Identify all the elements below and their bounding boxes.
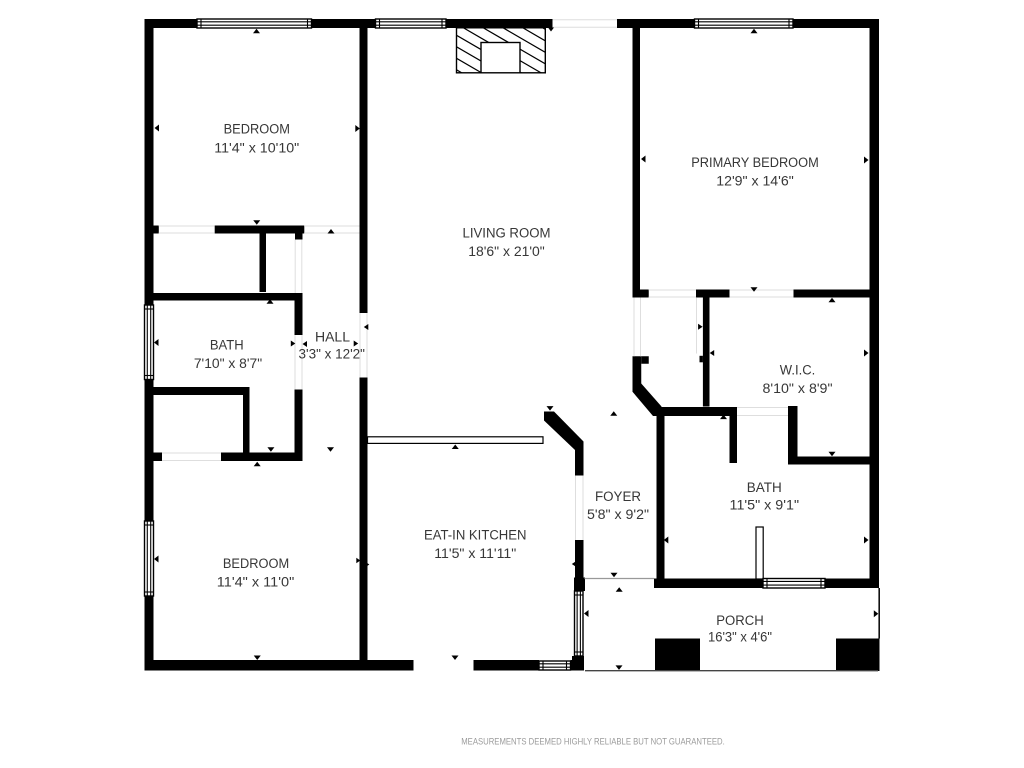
- svg-text:3'3" x 12'2": 3'3" x 12'2": [299, 347, 366, 362]
- svg-text:W.I.C.: W.I.C.: [780, 363, 816, 378]
- svg-text:5'8" x 9'2": 5'8" x 9'2": [587, 507, 649, 522]
- svg-text:HALL: HALL: [315, 329, 350, 344]
- svg-text:PRIMARY BEDROOM: PRIMARY BEDROOM: [691, 155, 819, 170]
- svg-text:12'9" x 14'6": 12'9" x 14'6": [716, 174, 794, 189]
- svg-text:11'4" x 10'10": 11'4" x 10'10": [214, 141, 299, 156]
- svg-text:BATH: BATH: [210, 337, 244, 352]
- svg-text:PORCH: PORCH: [716, 613, 764, 628]
- svg-text:BEDROOM: BEDROOM: [223, 556, 289, 571]
- svg-text:18'6" x 21'0": 18'6" x 21'0": [468, 244, 545, 259]
- svg-text:8'10" x 8'9": 8'10" x 8'9": [763, 381, 833, 396]
- svg-text:EAT-IN KITCHEN: EAT-IN KITCHEN: [424, 527, 527, 542]
- svg-text:LIVING ROOM: LIVING ROOM: [463, 225, 551, 240]
- svg-text:MEASUREMENTS DEEMED HIGHLY REL: MEASUREMENTS DEEMED HIGHLY RELIABLE BUT …: [461, 737, 725, 747]
- svg-text:BEDROOM: BEDROOM: [224, 122, 290, 137]
- svg-text:FOYER: FOYER: [595, 489, 641, 504]
- svg-text:11'5" x 9'1": 11'5" x 9'1": [730, 497, 800, 512]
- svg-text:11'4" x 11'0": 11'4" x 11'0": [217, 574, 295, 589]
- svg-text:7'10" x 8'7": 7'10" x 8'7": [194, 356, 263, 371]
- svg-text:BATH: BATH: [747, 480, 782, 495]
- svg-text:11'5" x 11'11": 11'5" x 11'11": [434, 546, 516, 561]
- svg-text:16'3" x 4'6": 16'3" x 4'6": [708, 630, 772, 645]
